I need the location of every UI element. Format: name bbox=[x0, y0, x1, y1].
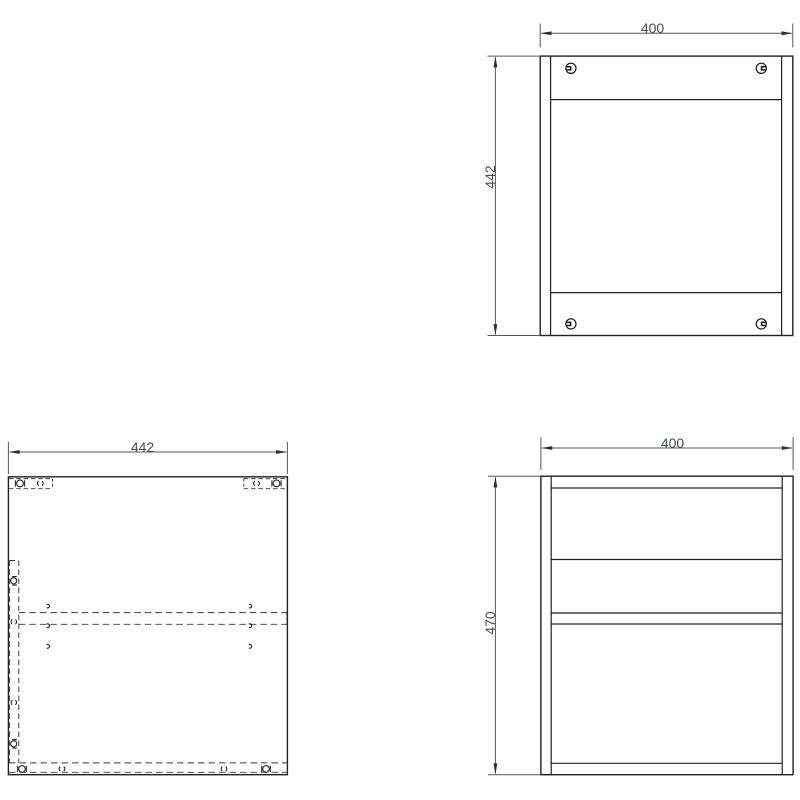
svg-text:442: 442 bbox=[131, 439, 155, 455]
svg-text:400: 400 bbox=[661, 435, 685, 451]
svg-text:400: 400 bbox=[641, 20, 665, 36]
svg-text:442: 442 bbox=[482, 165, 498, 189]
svg-text:470: 470 bbox=[482, 611, 498, 635]
